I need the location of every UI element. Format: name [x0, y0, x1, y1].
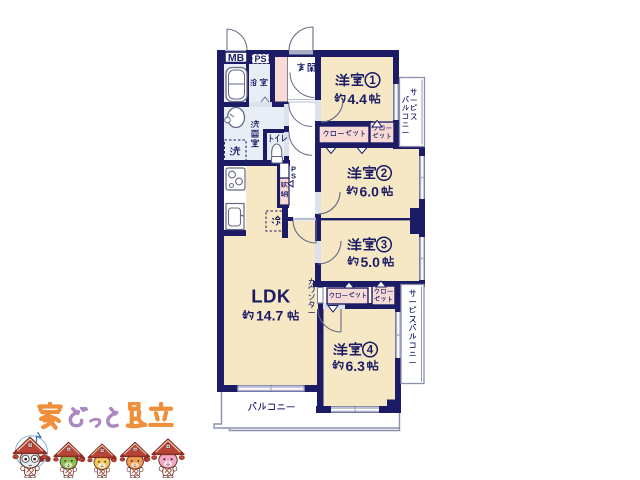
svg-text:6.0: 6.0 — [360, 183, 380, 199]
svg-text:4.4: 4.4 — [348, 91, 368, 107]
svg-text:14.7: 14.7 — [256, 308, 283, 324]
svg-text:5.0: 5.0 — [361, 254, 381, 270]
svg-text:2: 2 — [381, 168, 387, 180]
svg-text:1: 1 — [369, 75, 376, 87]
svg-text:PS: PS — [254, 54, 266, 64]
svg-text:4: 4 — [367, 345, 374, 357]
svg-text:S: S — [291, 172, 296, 181]
svg-text:MB: MB — [228, 52, 245, 64]
svg-text:3: 3 — [381, 240, 387, 252]
svg-text:LDK: LDK — [251, 286, 291, 307]
svg-text:6.3: 6.3 — [346, 358, 366, 374]
